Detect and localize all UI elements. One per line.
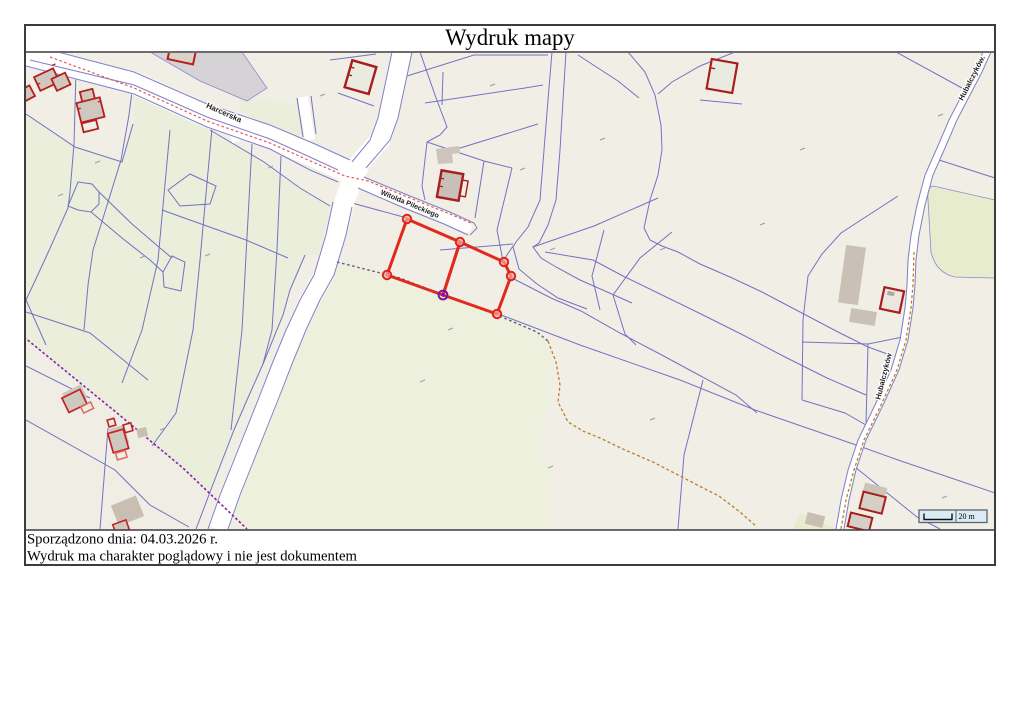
svg-text:Wydruk mapy: Wydruk mapy [445,25,575,50]
svg-text:20 m: 20 m [959,512,976,521]
svg-text:Sporządzono dnia: 04.03.2026 r: Sporządzono dnia: 04.03.2026 r. [27,532,218,548]
svg-text:Wydruk ma charakter poglądowy: Wydruk ma charakter poglądowy i nie jest… [27,549,357,565]
